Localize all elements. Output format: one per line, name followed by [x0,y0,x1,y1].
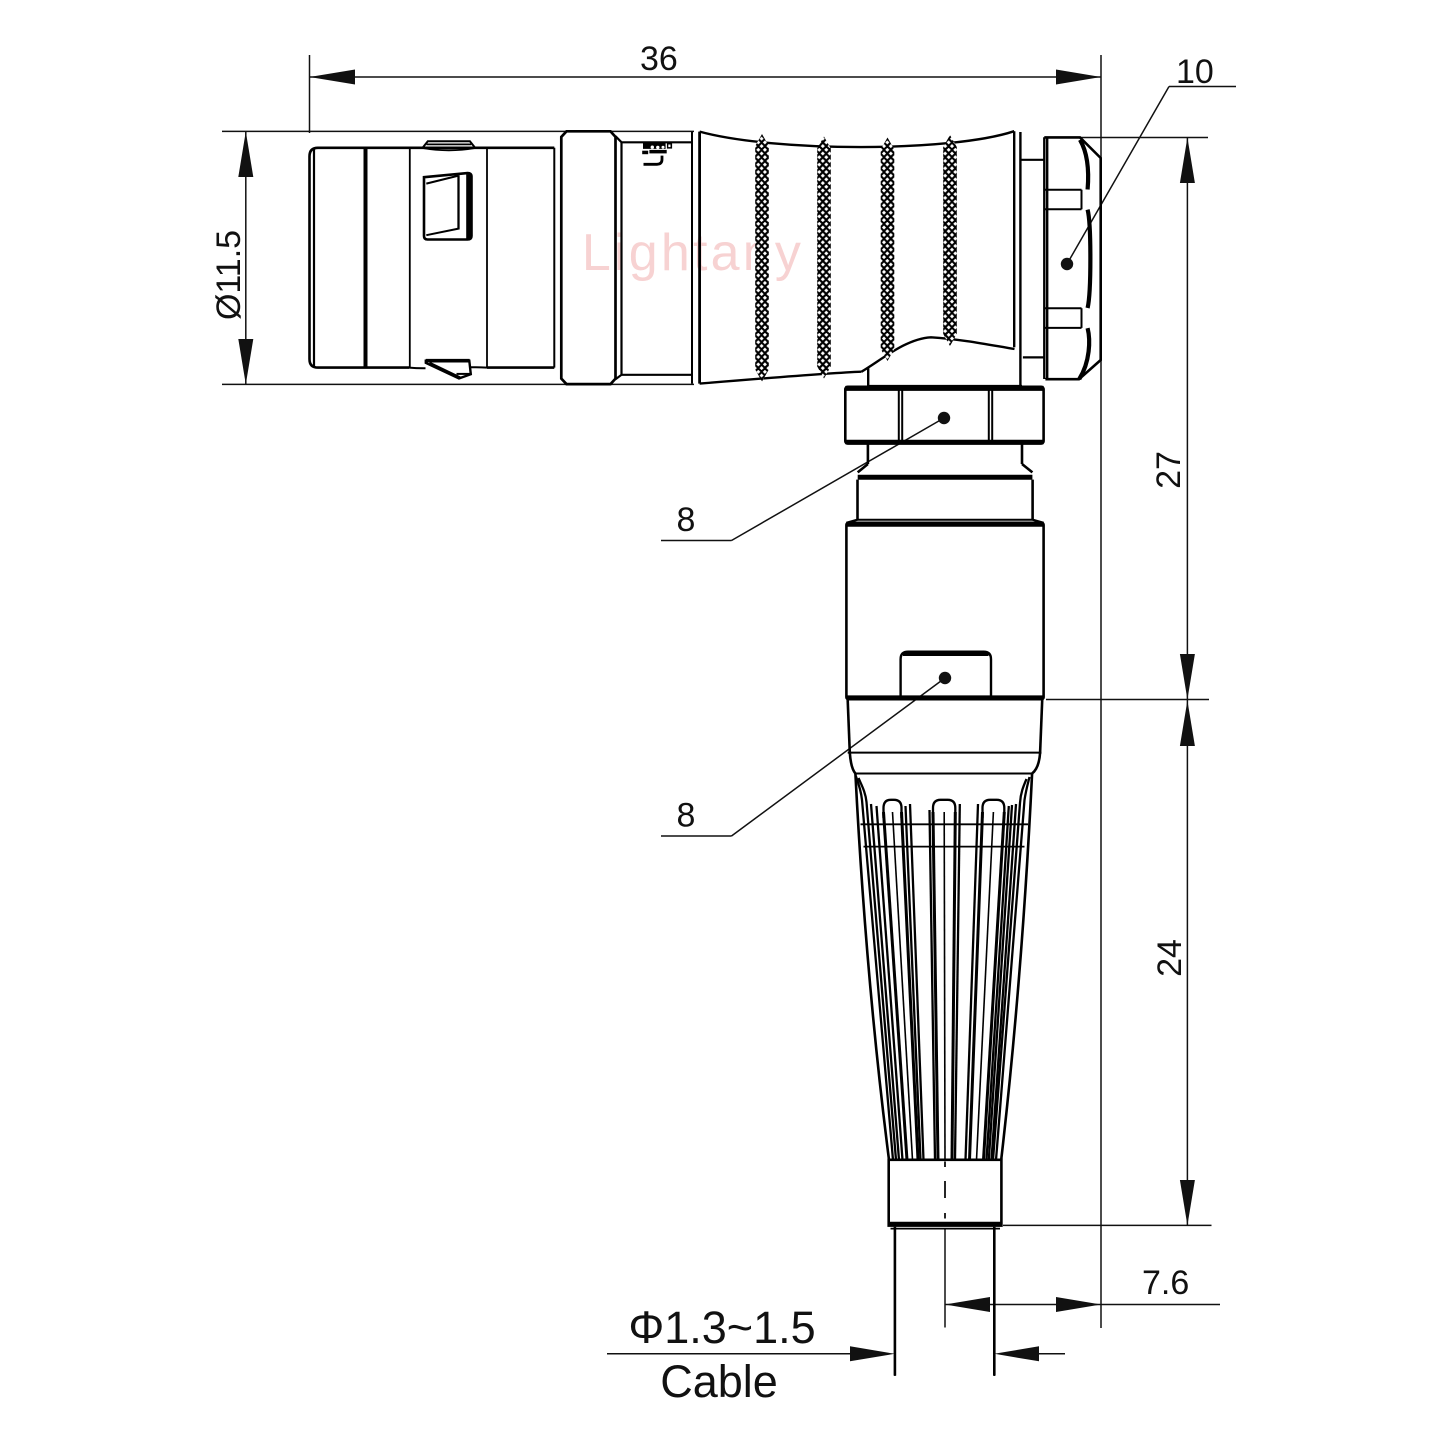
svg-text:Cable: Cable [660,1356,778,1407]
svg-text:7.6: 7.6 [1142,1264,1189,1302]
svg-text:10: 10 [1176,53,1214,91]
svg-text:Φ1.3~1.5: Φ1.3~1.5 [628,1302,815,1353]
svg-text:8: 8 [677,797,696,835]
svg-text:Ø11.5: Ø11.5 [210,230,248,320]
svg-text:8: 8 [677,501,696,539]
svg-text:36: 36 [640,40,678,78]
svg-text:24: 24 [1151,939,1189,977]
svg-text:27: 27 [1150,451,1188,489]
